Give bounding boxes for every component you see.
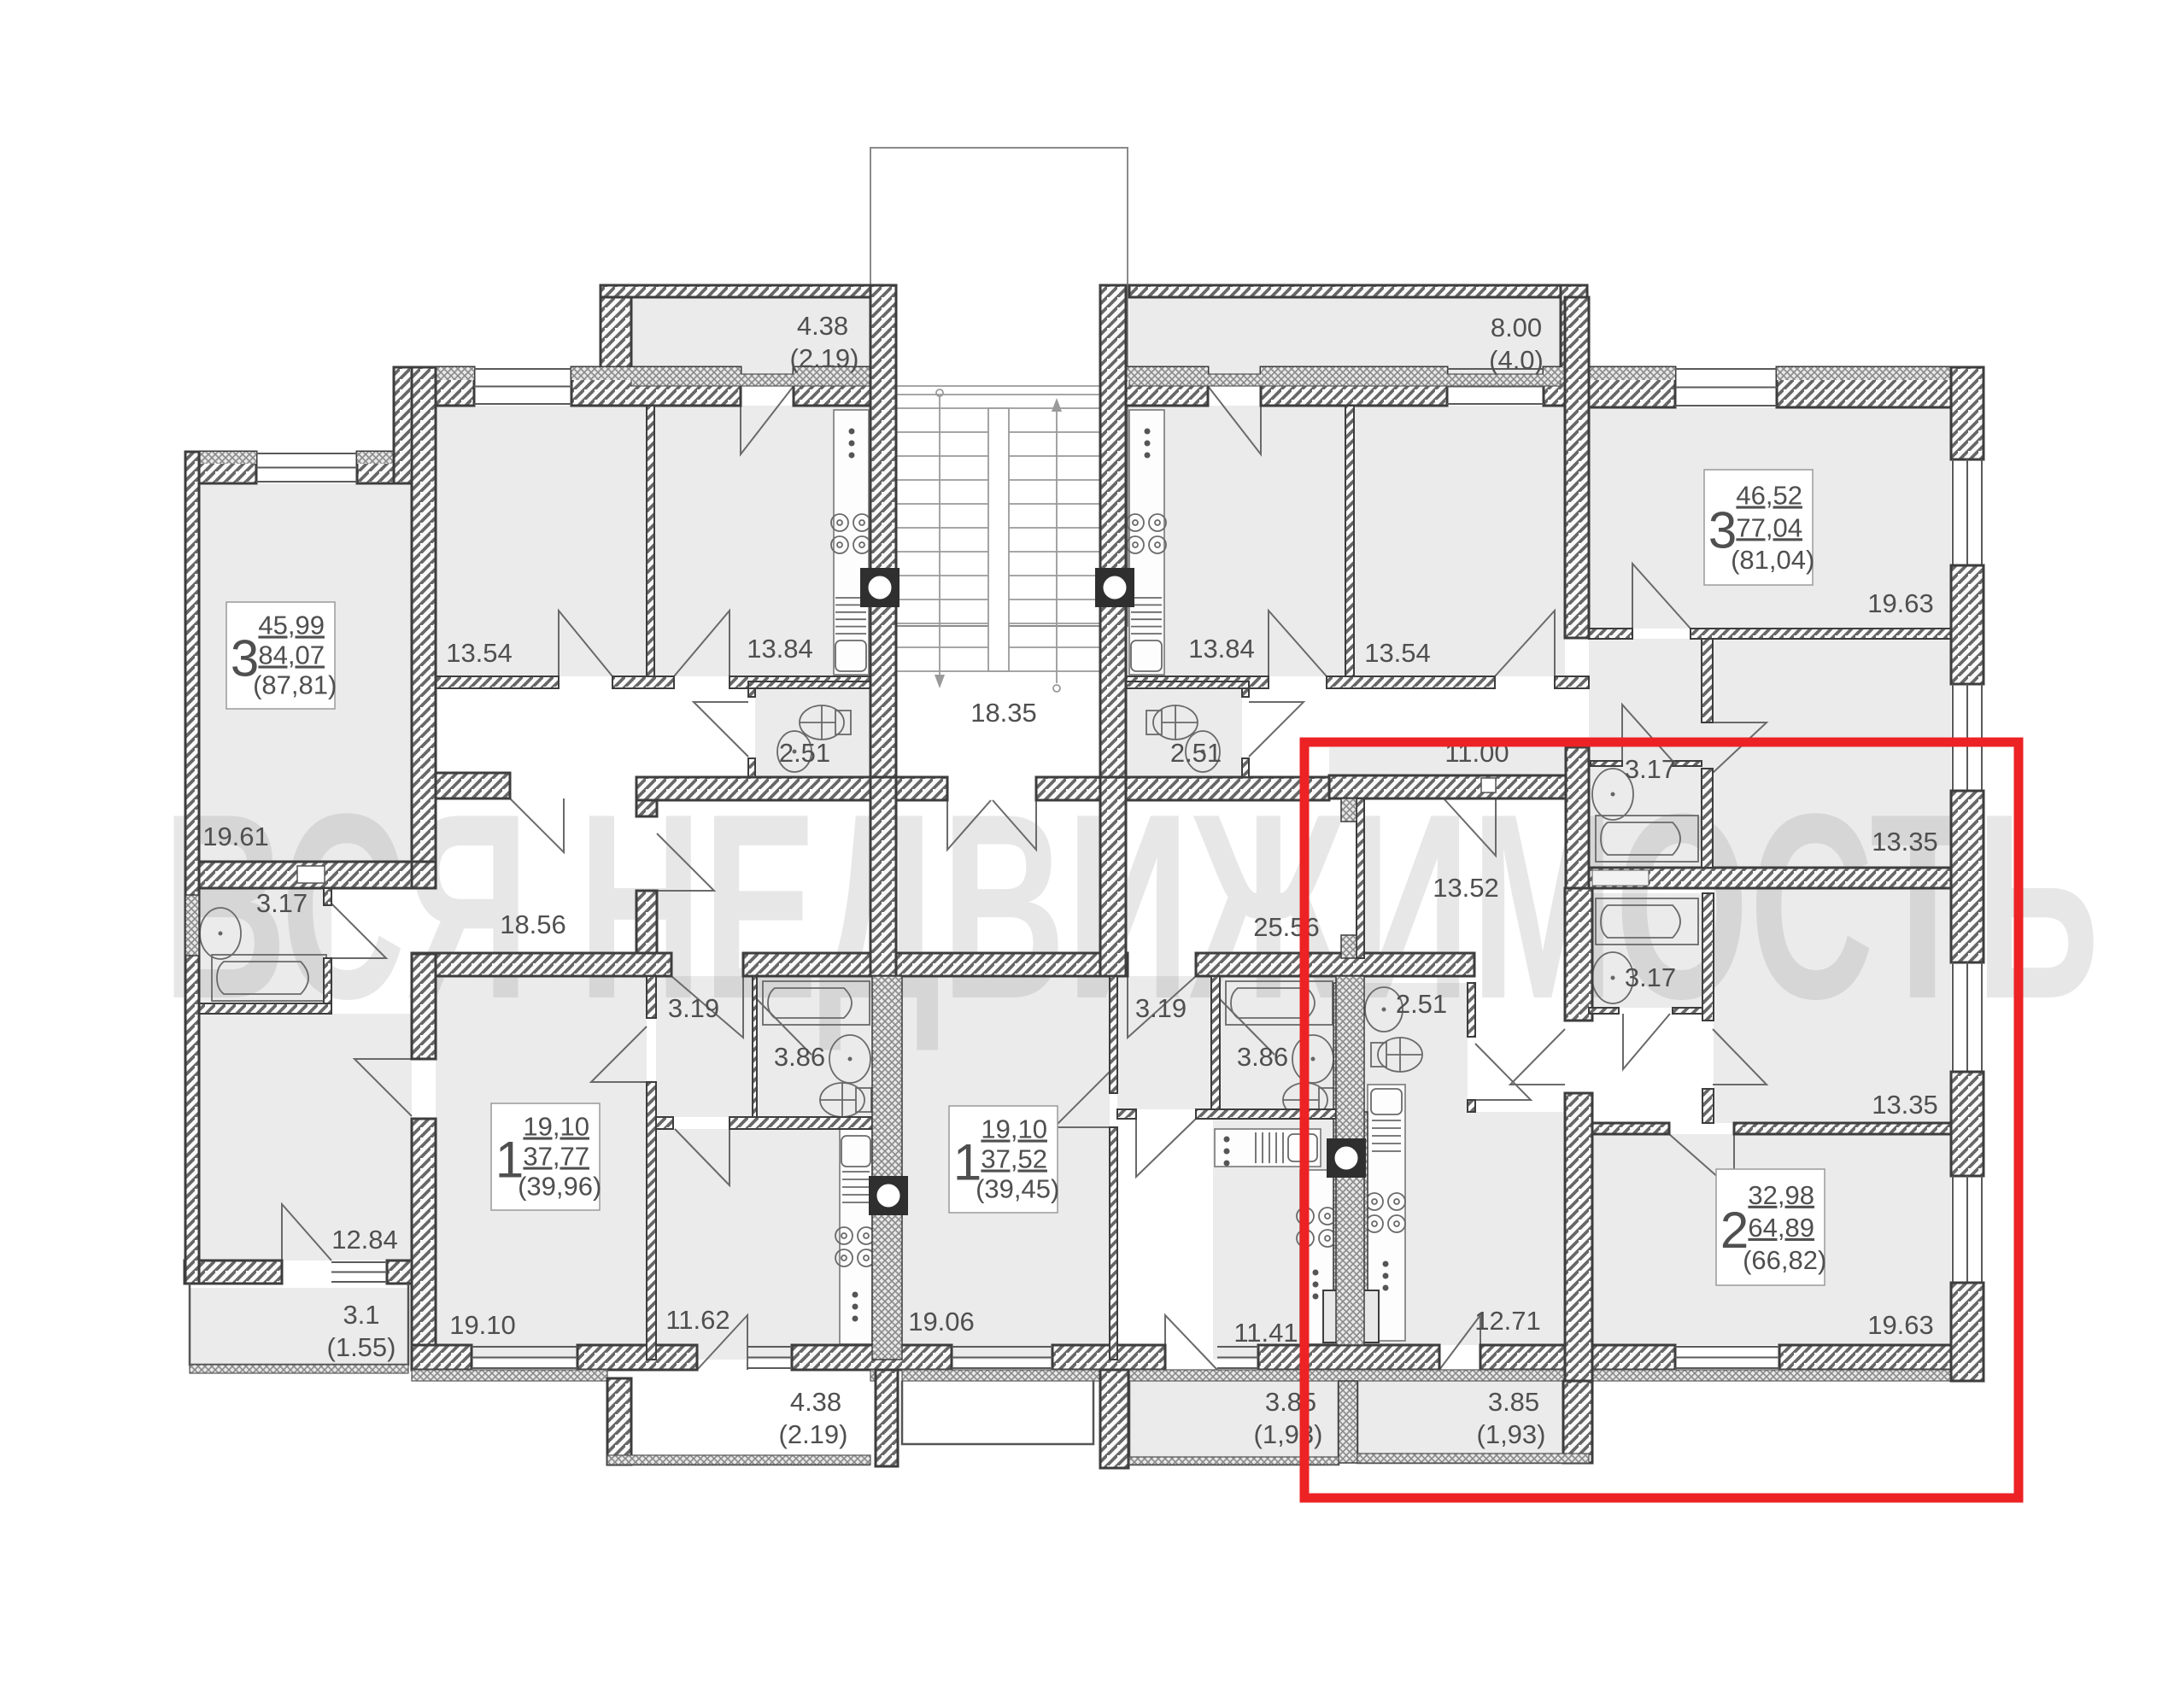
svg-text:13.54: 13.54 [446,638,513,668]
svg-text:3.17: 3.17 [1625,754,1676,784]
svg-text:3.17: 3.17 [256,888,308,918]
svg-text:(1,93): (1,93) [1254,1419,1323,1449]
svg-text:(39,96): (39,96) [518,1172,601,1202]
svg-text:3.86: 3.86 [774,1042,825,1072]
svg-text:11.62: 11.62 [665,1305,730,1335]
svg-text:3.17: 3.17 [1625,962,1676,992]
svg-text:13.35: 13.35 [1872,1090,1938,1120]
svg-text:13.84: 13.84 [747,634,813,664]
svg-text:18.56: 18.56 [500,910,566,939]
svg-text:4.38: 4.38 [790,1387,841,1417]
svg-text:19.61: 19.61 [202,822,269,851]
svg-text:37,52: 37,52 [981,1144,1047,1174]
svg-text:19.63: 19.63 [1867,588,1934,618]
svg-text:19.06: 19.06 [908,1307,975,1337]
svg-text:13.52: 13.52 [1433,873,1499,903]
svg-text:13.54: 13.54 [1364,638,1431,668]
svg-text:3.19: 3.19 [668,993,719,1023]
svg-text:ВСЯ НЕДВИЖИМОСТЬ: ВСЯ НЕДВИЖИМОСТЬ [162,760,2100,1054]
svg-text:2.51: 2.51 [1170,738,1222,768]
svg-text:19,10: 19,10 [523,1112,589,1142]
svg-text:(2.19): (2.19) [779,1419,848,1449]
svg-text:2.51: 2.51 [1396,989,1447,1019]
svg-text:12.84: 12.84 [331,1225,398,1255]
svg-text:18.35: 18.35 [970,698,1037,728]
svg-text:12.71: 12.71 [1474,1306,1541,1336]
svg-text:3.85: 3.85 [1488,1387,1539,1417]
svg-text:11.41: 11.41 [1233,1318,1298,1348]
svg-text:45,99: 45,99 [258,611,325,640]
svg-text:25.56: 25.56 [1253,912,1320,942]
svg-text:4.38: 4.38 [797,311,848,341]
svg-text:3.19: 3.19 [1135,993,1187,1023]
svg-text:(39,45): (39,45) [976,1174,1059,1204]
svg-text:19.63: 19.63 [1867,1310,1934,1340]
svg-text:(81,04): (81,04) [1731,545,1814,575]
svg-text:77,04: 77,04 [1736,512,1802,542]
svg-text:(1,93): (1,93) [1477,1419,1546,1449]
svg-text:(2.19): (2.19) [790,343,859,373]
svg-text:84,07: 84,07 [258,640,325,670]
svg-text:13.35: 13.35 [1872,827,1938,857]
svg-text:(4.0): (4.0) [1489,345,1544,375]
svg-text:(1.55): (1.55) [327,1332,396,1362]
svg-text:19.10: 19.10 [449,1310,516,1340]
svg-text:3.1: 3.1 [343,1300,379,1330]
svg-text:2.51: 2.51 [779,738,830,768]
svg-text:3.86: 3.86 [1237,1042,1288,1072]
svg-text:64,89: 64,89 [1748,1213,1814,1243]
svg-text:(87,81): (87,81) [253,670,337,700]
svg-text:(66,82): (66,82) [1743,1245,1826,1275]
svg-text:32,98: 32,98 [1748,1180,1814,1210]
svg-text:13.84: 13.84 [1188,634,1255,664]
svg-text:46,52: 46,52 [1736,481,1802,511]
svg-text:37,77: 37,77 [523,1142,589,1172]
svg-text:19,10: 19,10 [981,1114,1047,1144]
svg-text:8.00: 8.00 [1491,313,1542,342]
